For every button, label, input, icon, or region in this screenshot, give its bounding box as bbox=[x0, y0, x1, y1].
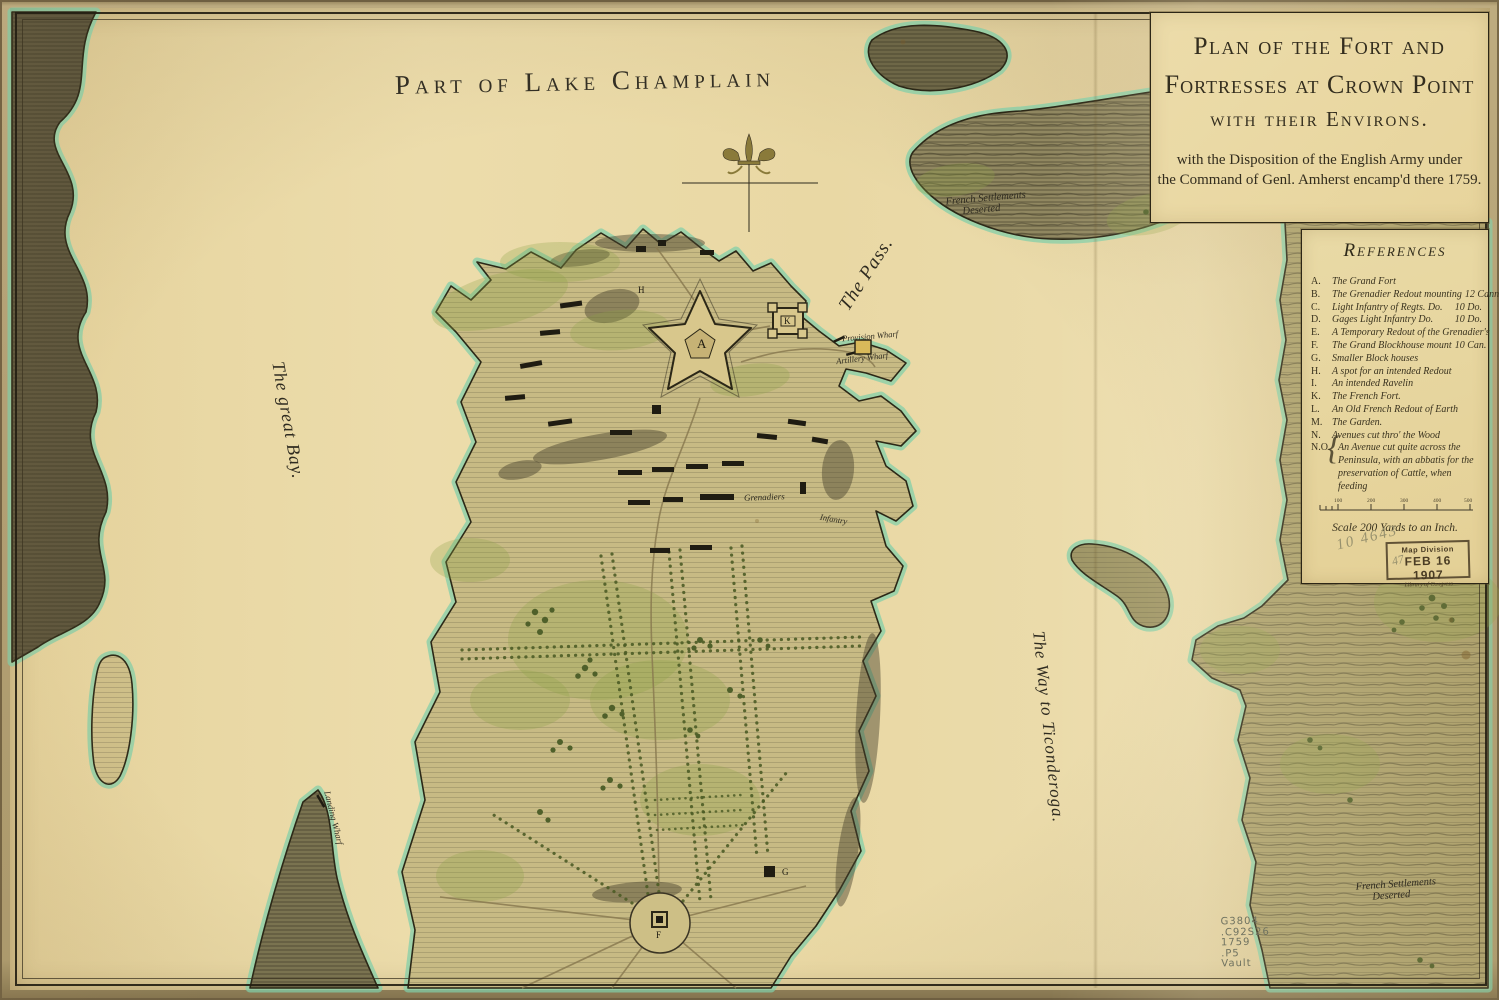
reference-item: C.Light Infantry of Regts. Do.10 Do. bbox=[1311, 302, 1482, 315]
reference-item: D.Gages Light Infantry Do.10 Do. bbox=[1311, 314, 1482, 327]
reference-item: F.The Grand Blockhouse mount10 Can. bbox=[1311, 340, 1482, 353]
blockhouse-circle bbox=[630, 893, 690, 953]
svg-text:100: 100 bbox=[1334, 498, 1343, 504]
scale-bar: 100 200 300 400 500 bbox=[1318, 496, 1476, 521]
svg-text:500: 500 bbox=[1464, 498, 1473, 504]
fort-letter-h: H bbox=[638, 285, 645, 295]
fort-letter-k: K bbox=[784, 316, 791, 326]
label-grenadiers-camp: Grenadiers bbox=[744, 491, 785, 502]
references-list: A.The Grand Fort B.The Grenadier Redout … bbox=[1311, 276, 1482, 494]
reference-item: I.An intended Ravelin bbox=[1311, 378, 1482, 391]
reference-item: B.The Grenadier Redout mounting12 Cann. bbox=[1311, 289, 1482, 302]
landmass-hooked-spit bbox=[1071, 544, 1169, 627]
reference-item: M.The Garden. bbox=[1311, 417, 1482, 430]
reference-item: H.A spot for an intended Redout bbox=[1311, 366, 1482, 379]
svg-text:200: 200 bbox=[1367, 498, 1376, 504]
references-title: References bbox=[1302, 240, 1488, 262]
reference-item: G.Smaller Block houses bbox=[1311, 353, 1482, 366]
fort-letter-g: G bbox=[782, 867, 789, 877]
landmass-bottom-left-shore bbox=[250, 790, 378, 988]
cartouche-line-1: Plan of the Fort and bbox=[1151, 33, 1488, 61]
cartouche-line-3: with their Environs. bbox=[1151, 107, 1488, 132]
reference-item: E.A Temporary Redout of the Grenadier's bbox=[1311, 327, 1482, 340]
svg-text:300: 300 bbox=[1400, 498, 1409, 504]
cartouche-line-2: Fortresses at Crown Point bbox=[1151, 70, 1488, 100]
fort-letter-f: F bbox=[656, 930, 661, 940]
compass-north-arrow bbox=[682, 134, 818, 232]
reference-item: K.The French Fort. bbox=[1311, 391, 1482, 404]
svg-text:400: 400 bbox=[1433, 498, 1442, 504]
reference-item: L.An Old French Redout of Earth bbox=[1311, 404, 1482, 417]
landmass-left-shore bbox=[12, 12, 108, 662]
cartouche-subtitle-1: with the Disposition of the English Army… bbox=[1151, 152, 1488, 169]
call-number: G3804 .C92S26 1759 .P5 Vault bbox=[1221, 917, 1271, 971]
cartouche-subtitle-2: the Command of Genl. Amherst encamp'd th… bbox=[1151, 172, 1488, 189]
reference-item: N.O.An Avenue cut quite across the Penin… bbox=[1311, 442, 1482, 493]
title-cartouche: Plan of the Fort and Fortresses at Crown… bbox=[1150, 12, 1489, 223]
reference-item: A.The Grand Fort bbox=[1311, 276, 1482, 289]
fort-letter-a: A bbox=[697, 336, 706, 352]
